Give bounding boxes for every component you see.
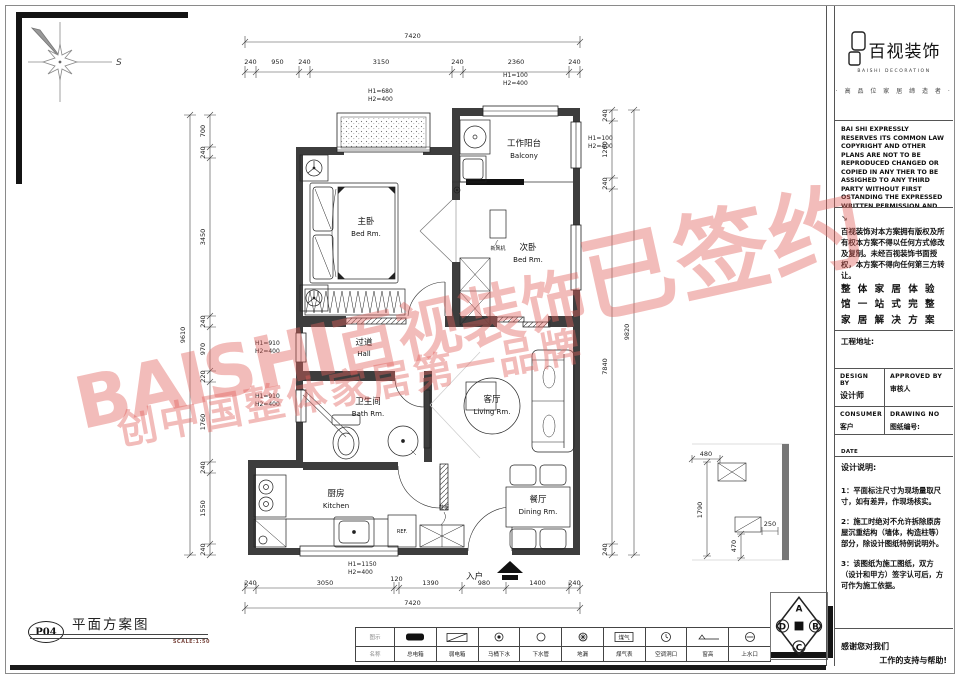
room-hall-cn: 过道 — [355, 337, 373, 348]
legend-header-name: 名称 — [369, 650, 380, 658]
bath-west-window — [296, 390, 306, 422]
consumer-cell: CONSUMER 客户 — [835, 407, 885, 434]
dim-top-1: 950 — [271, 58, 283, 66]
compass-south-label: S — [116, 58, 122, 68]
copyright-english: BAI SHI EXPRESSLY RESERVES ITS COMMON LA… — [835, 121, 953, 208]
master-bedroom-door — [408, 282, 445, 316]
kitchen-bottom-window — [300, 546, 398, 556]
symbol-legend: 图示 名称 总电箱 弱电箱 马桶下水 下水管 地漏 煤气 煤气表 空 — [355, 627, 771, 662]
diagonal-arrow-icon: ↘ — [841, 213, 947, 225]
fresh-air-unit — [490, 210, 506, 248]
living-table — [464, 378, 520, 434]
company-tagline: · 高 品 位 家 居 缔 造 者 · — [836, 86, 952, 95]
legend-item-weak-current: 弱电箱 — [437, 628, 479, 661]
stove — [254, 475, 286, 517]
company-name-en: BAISHI DECORATION — [857, 69, 930, 74]
company-logo: 百视装饰 BAISHI DECORATION · 高 品 位 家 居 缔 造 者… — [835, 6, 953, 121]
company-slogan: 整 体 家 居 体 验 馆 一 站 式 完 整 家 居 解 决 方 案 — [841, 282, 947, 329]
legend-header: 图示 名称 — [356, 628, 395, 661]
room-bath-cn: 卫生间 — [355, 396, 381, 407]
shower-screen — [303, 389, 350, 437]
legend-label: 上水口 — [729, 647, 770, 661]
hall-west-window — [296, 333, 306, 362]
tag-balcony-top-h2: H2=400 — [503, 80, 528, 87]
gas-meter-text: 煤气 — [619, 634, 631, 642]
water-inlet-icon — [744, 631, 756, 643]
dim-top-4: 240 — [451, 58, 463, 66]
consumer-cn-label: 客户 — [840, 421, 879, 431]
dim-detail-470: 470 — [730, 540, 738, 552]
shoe-cabinet-label: 鞋柜 — [439, 504, 449, 511]
master-sliding-door — [346, 318, 406, 324]
dim-top-2: 240 — [298, 58, 310, 66]
fresh-air-label: 新风机 — [490, 245, 505, 252]
legend-label: 地漏 — [562, 647, 603, 661]
room-master-cn: 主卧 — [357, 216, 375, 227]
date-row: DATE 出图日期: — [835, 435, 953, 457]
designer-label: 设计师 — [840, 390, 879, 401]
legend-item-floor-drain: 地漏 — [562, 628, 604, 661]
dim-left-0: 700 — [199, 125, 207, 137]
tag-kitchen-h1: H1=1150 — [348, 561, 377, 568]
dim-top-6: 240 — [568, 58, 580, 66]
compass-rose-icon: S — [28, 22, 122, 102]
room-bed2-en: Bed Rm. — [513, 256, 543, 264]
thanks-line2: 工作的支持与帮助! — [841, 655, 947, 666]
wash-basin — [388, 426, 418, 456]
master-east-opening — [420, 200, 456, 262]
dimension-chain-bottom: 240 3050 120 1390 980 1400 240 7420 — [242, 575, 583, 614]
diamond-letter-c: C — [796, 643, 802, 653]
legend-item-toilet-drain: 马桶下水 — [479, 628, 521, 661]
dim-top-total: 7420 — [404, 32, 421, 40]
dim-right-total: 9820 — [623, 324, 631, 341]
design-notes-title: 设计说明: — [841, 462, 947, 474]
dim-left-3: 240 — [199, 315, 207, 327]
dim-bottom-6: 240 — [568, 579, 580, 587]
dim-detail-250: 250 — [764, 520, 776, 528]
consumer-drawing-row: CONSUMER 客户 DRAWING NO 图纸编号: — [835, 407, 953, 435]
drawing-no-label: DRAWING NO — [890, 411, 948, 418]
tag-kitchen-h2: H2=400 — [348, 569, 373, 576]
dim-left-8: 1550 — [199, 500, 207, 517]
ac-opening-icon — [660, 631, 672, 643]
legend-item-water-inlet: 上水口 — [729, 628, 770, 661]
dim-detail-1790: 1790 — [696, 502, 704, 519]
dim-left-7: 240 — [199, 461, 207, 473]
sheet-scale: SCALE:1:50 — [173, 639, 210, 645]
dim-bottom-0: 240 — [244, 579, 256, 587]
dim-right-3: 7840 — [601, 358, 609, 375]
dim-right-4: 240 — [601, 543, 609, 555]
dim-left-5: 220 — [199, 370, 207, 382]
bedroom2-sliding-door — [497, 317, 550, 327]
thanks-line1: 感谢您对我们 — [841, 641, 947, 652]
room-kitchen-en: Kitchen — [323, 502, 349, 510]
legend-item-ac-opening: 空调洞口 — [646, 628, 688, 661]
room-dining-en: Dining Rm. — [519, 508, 558, 516]
room-balcony-en: Balcony — [510, 152, 538, 160]
room-living-cn: 客厅 — [483, 394, 501, 405]
design-by-label: DESIGN BY — [840, 373, 879, 387]
diamond-logo-box: A B C D — [770, 592, 828, 660]
tag-balcony-right-h1: H1=100 — [588, 135, 613, 142]
kitchen-sink — [334, 517, 374, 547]
dining-set — [506, 465, 570, 549]
legend-label: 马桶下水 — [479, 647, 520, 661]
drawing-sheet: S — [0, 0, 960, 679]
main-power-box-icon — [404, 632, 426, 642]
drain-pipe-icon — [535, 631, 547, 643]
legend-item-drain-pipe: 下水管 — [520, 628, 562, 661]
window-height-icon — [695, 632, 721, 642]
approved-by-cell: APPROVED BY 审核人 — [885, 369, 953, 406]
dim-left-total: 9610 — [179, 327, 187, 344]
diamond-letter-d: D — [779, 622, 786, 632]
sofa — [532, 350, 574, 452]
nightstand-top — [300, 155, 328, 181]
balcony-right-window — [571, 122, 581, 168]
room-hall-en: Hall — [357, 350, 370, 358]
legend-label: 下水管 — [520, 647, 561, 661]
copyright-chinese-text: 百视装饰对本方案拥有版权及所有权本方案不得以任何方式修改及复制。未经百视装饰书面… — [841, 227, 944, 280]
bedroom2-wardrobe — [460, 258, 490, 325]
tag-bath-h1: H1=910 — [255, 393, 280, 400]
dimension-chain-left: 700 240 3450 240 970 220 1760 240 1550 2… — [179, 112, 216, 558]
dim-right-1: 1260 — [601, 141, 609, 158]
diamond-compass-icon: A B C D — [772, 594, 826, 658]
baishi-logo-icon — [848, 31, 866, 67]
room-bed2-cn: 次卧 — [519, 242, 537, 253]
dim-top-3: 3150 — [373, 58, 390, 66]
dimension-chain-top: 240 950 240 3150 240 2360 240 7420 — [242, 32, 583, 78]
legend-item-window-height: 窗高 — [687, 628, 729, 661]
dim-bottom-5: 1400 — [529, 579, 546, 587]
bedroom2-right-window — [571, 225, 581, 290]
room-living-en: Living Rm. — [474, 408, 511, 416]
design-approved-row: DESIGN BY 设计师 APPROVED BY 审核人 — [835, 369, 953, 407]
tag-balcony-top-h1: H1=100 — [503, 72, 528, 79]
dim-detail-480: 480 — [700, 450, 712, 458]
tag-bay-h2: H2=400 — [368, 96, 393, 103]
project-address: 工程地址: — [835, 331, 953, 369]
drawing-no-cn-label: 图纸编号: — [890, 421, 948, 431]
diamond-letter-a: A — [796, 605, 803, 615]
dim-left-4: 970 — [199, 343, 207, 355]
dim-bottom-1: 3050 — [317, 579, 334, 587]
room-master-en: Bed Rm. — [351, 230, 381, 238]
bottom-rule — [10, 665, 826, 670]
legend-label: 空调洞口 — [646, 647, 687, 661]
wall-section-detail: 480 1790 470 250 — [689, 444, 789, 561]
shoe-cabinet — [420, 512, 464, 547]
room-kitchen-cn: 厨房 — [327, 488, 344, 499]
bay-window — [337, 113, 430, 152]
dim-top-5: 2360 — [508, 58, 525, 66]
approver-label: 审核人 — [890, 383, 948, 393]
dim-bottom-4: 980 — [478, 579, 490, 587]
legend-item-main-power: 总电箱 — [395, 628, 437, 661]
dim-right-2: 240 — [601, 177, 609, 189]
sheet-number-badge: P04 — [28, 621, 64, 643]
gas-meter-icon: 煤气 — [613, 631, 635, 643]
design-note-3: 3：该图纸为施工图纸，双方（设计和甲方）签字认可后，方可作为施工依据。 — [841, 559, 947, 592]
approved-by-label: APPROVED BY — [890, 373, 948, 380]
legend-label: 弱电箱 — [437, 647, 478, 661]
dim-bottom-total: 7420 — [404, 599, 421, 607]
dim-left-9: 240 — [199, 543, 207, 555]
design-note-1: 1：平面标注尺寸为现场量取尺寸，如有差异，作现场核实。 — [841, 486, 947, 508]
legend-label: 窗高 — [687, 647, 728, 661]
company-name: 百视装饰 — [869, 37, 941, 62]
kitchen-wall-infill — [440, 464, 448, 510]
design-notes: 设计说明: 1：平面标注尺寸为现场量取尺寸，如有差异，作现场核实。 2：施工时绝… — [835, 457, 953, 629]
dim-left-1: 240 — [199, 146, 207, 158]
kitchen-door — [398, 466, 440, 508]
tag-bath-h2: H2=400 — [255, 401, 280, 408]
room-bath-en: Bath Rm. — [352, 410, 384, 418]
kitchen-corner-cabinet — [254, 519, 286, 547]
copyright-chinese: ↘百视装饰对本方案拥有版权及所有权本方案不得以任何方式修改及复制。未经百视装饰书… — [841, 213, 947, 282]
washing-machine — [460, 120, 490, 154]
thanks-note: 感谢您对我们 工作的支持与帮助! — [835, 629, 953, 666]
diamond-letter-b: B — [812, 622, 819, 632]
title-block: 百视装饰 BAISHI DECORATION · 高 品 位 家 居 缔 造 者… — [826, 6, 953, 666]
date-label: DATE — [841, 449, 858, 455]
bath-door — [395, 378, 424, 407]
room-dining-cn: 餐厅 — [529, 495, 547, 505]
toilet-drain-icon — [493, 631, 505, 643]
room-balcony-cn: 工作阳台 — [507, 138, 541, 149]
tag-hall-h2: H2=400 — [255, 348, 280, 355]
view-lines — [430, 352, 480, 458]
balcony-top-window — [483, 106, 558, 116]
fridge-label: REF. — [397, 529, 408, 535]
legend-header-symbol: 图示 — [369, 633, 380, 641]
dim-left-6: 1760 — [199, 414, 207, 431]
dim-right-0: 240 — [601, 109, 609, 121]
legend-label: 总电箱 — [395, 647, 436, 661]
dim-bottom-2: 120 — [390, 575, 402, 583]
tag-hall-h1: H1=910 — [255, 340, 280, 347]
entrance-arrow: 入户 — [466, 561, 523, 582]
floor-drain-icon — [577, 631, 589, 643]
entrance-door — [468, 507, 512, 551]
tag-bay-h1: H1=680 — [368, 88, 393, 95]
balcony-sink — [460, 156, 486, 182]
sheet-title-block: P04 平面方案图 SCALE:1:50 — [28, 612, 210, 654]
dim-left-2: 3450 — [199, 229, 207, 246]
weak-current-box-icon — [445, 632, 469, 643]
drawing-no-cell: DRAWING NO 图纸编号: — [885, 407, 953, 434]
copyright-chinese-section: ↘百视装饰对本方案拥有版权及所有权本方案不得以任何方式修改及复制。未经百视装饰书… — [835, 208, 953, 331]
sheet-title: 平面方案图 — [72, 613, 150, 633]
design-note-2: 2：施工时绝对不允许拆除原房屋沉重结构（墙体，构造柱等）部分，除设计图纸特例说明… — [841, 517, 947, 550]
consumer-label: CONSUMER — [840, 411, 879, 418]
legend-item-gas-meter: 煤气 煤气表 — [604, 628, 646, 661]
dim-bottom-3: 1390 — [422, 579, 439, 587]
legend-label: 煤气表 — [604, 647, 645, 661]
floor-plan-drawing: S — [0, 0, 960, 679]
dimension-chain-right: 240 1260 240 7840 240 9820 — [601, 107, 640, 558]
dim-top-0: 240 — [244, 58, 256, 66]
design-by-cell: DESIGN BY 设计师 — [835, 369, 885, 406]
